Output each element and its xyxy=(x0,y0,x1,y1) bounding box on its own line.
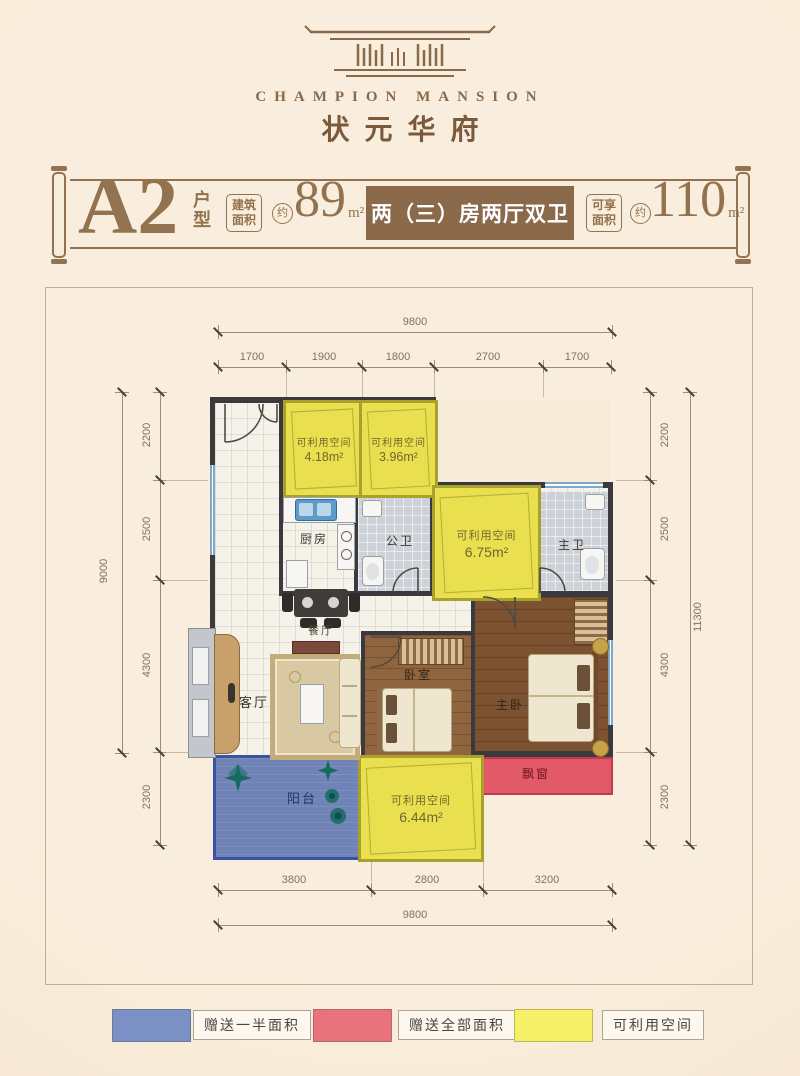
dim-line xyxy=(690,392,691,845)
dim-top-seg: 1900 xyxy=(302,351,346,363)
legend-swatch-usable xyxy=(514,1009,593,1042)
enjoy-area-label: 可享面积 xyxy=(586,194,622,232)
dim-line xyxy=(122,392,123,753)
dim-left-seg: 2200 xyxy=(141,413,153,457)
build-area-label: 建筑面积 xyxy=(226,194,262,232)
enjoy-area-value: 110 m² xyxy=(650,172,744,228)
build-area-value: 89 m² xyxy=(294,172,364,228)
dim-right-seg: 2500 xyxy=(659,507,671,551)
legend-label-full-gift: 赠送全部面积 xyxy=(398,1010,516,1040)
dim-line xyxy=(218,332,612,333)
dim-left-total: 9000 xyxy=(98,549,110,593)
dim-right-seg: 2200 xyxy=(659,413,671,457)
dim-right-total: 11300 xyxy=(692,595,704,639)
dim-bottom-seg: 3800 xyxy=(272,874,316,886)
dim-ext xyxy=(616,480,644,481)
enjoy-area-approx: 约 xyxy=(630,203,651,224)
brand-name-en: CHAMPION MANSION xyxy=(0,89,800,106)
layout-description: 两（三）房两厅双卫 xyxy=(366,186,574,240)
dim-ext xyxy=(616,752,644,753)
dim-left-seg: 2500 xyxy=(141,507,153,551)
dim-bottom-total: 9800 xyxy=(393,909,437,921)
door-swing-arcs xyxy=(185,390,615,860)
build-area-unit: m² xyxy=(348,206,364,221)
legend-swatch-full-gift xyxy=(313,1009,392,1042)
dim-top-seg: 1700 xyxy=(555,351,599,363)
unit-code: A2 xyxy=(78,160,178,252)
enjoy-area-number: 110 xyxy=(650,172,726,228)
dim-top-seg: 1700 xyxy=(230,351,274,363)
dim-top-seg: 2700 xyxy=(466,351,510,363)
flyer-canvas: CHAMPION MANSION 状元华府 A2 户型 建筑面积 约 89 m²… xyxy=(0,0,800,1076)
unit-type-label: 户型 xyxy=(188,190,214,230)
scroll-ornament-left xyxy=(52,172,66,258)
dim-top-seg: 1800 xyxy=(376,351,420,363)
enjoy-area-unit: m² xyxy=(728,206,744,221)
dim-line xyxy=(218,367,612,368)
dim-ext xyxy=(616,580,644,581)
dim-bottom-seg: 3200 xyxy=(525,874,569,886)
brand-logo-icon xyxy=(300,20,500,84)
dim-top-total: 9800 xyxy=(393,316,437,328)
legend-label-usable: 可利用空间 xyxy=(602,1010,704,1040)
brand-name-zh: 状元华府 xyxy=(0,108,800,148)
dim-right-seg: 2300 xyxy=(659,775,671,819)
dim-line xyxy=(218,925,612,926)
dim-bottom-seg: 2800 xyxy=(405,874,449,886)
dim-left-seg: 2300 xyxy=(141,775,153,819)
legend-swatch-half-gift xyxy=(112,1009,191,1042)
dim-right-seg: 4300 xyxy=(659,643,671,687)
dim-line xyxy=(650,392,651,845)
build-area-number: 89 xyxy=(294,172,346,228)
dim-left-seg: 4300 xyxy=(141,643,153,687)
dim-line xyxy=(160,392,161,845)
legend-label-half-gift: 赠送一半面积 xyxy=(193,1010,311,1040)
dim-line xyxy=(218,890,612,891)
build-area-approx: 约 xyxy=(272,203,293,224)
